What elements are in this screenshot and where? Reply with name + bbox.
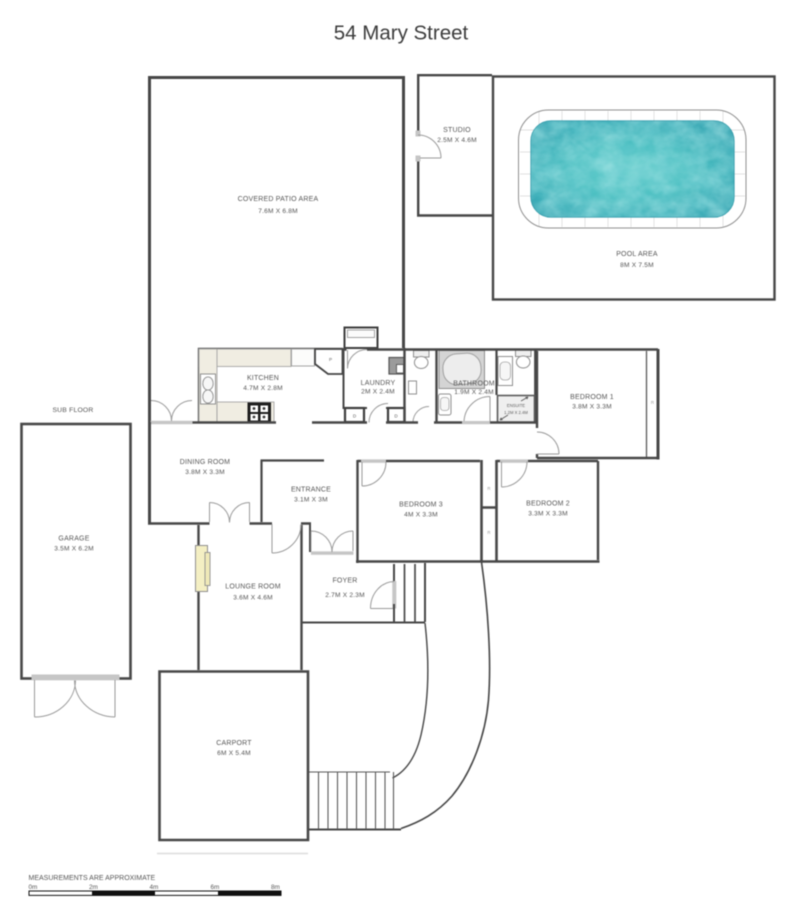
svg-text:0m: 0m xyxy=(29,884,38,891)
svg-text:ENSUITE: ENSUITE xyxy=(507,403,525,408)
svg-text:COVERED PATIO AREA: COVERED PATIO AREA xyxy=(238,196,319,203)
svg-text:R: R xyxy=(487,486,490,491)
svg-text:GARAGE: GARAGE xyxy=(58,536,89,543)
svg-text:2M X 2.4M: 2M X 2.4M xyxy=(361,389,395,396)
svg-text:54 Mary Street: 54 Mary Street xyxy=(334,22,469,45)
svg-text:P: P xyxy=(329,357,332,362)
svg-text:BEDROOM 3: BEDROOM 3 xyxy=(399,502,443,509)
svg-text:7.6M X 6.8M: 7.6M X 6.8M xyxy=(258,208,298,215)
svg-text:2.5M X 4.6M: 2.5M X 4.6M xyxy=(437,137,477,144)
svg-text:3.5M X 6.2M: 3.5M X 6.2M xyxy=(54,546,94,553)
svg-text:8m: 8m xyxy=(271,884,280,891)
svg-text:3.6M X 4.6M: 3.6M X 4.6M xyxy=(233,595,273,602)
svg-text:CARPORT: CARPORT xyxy=(216,740,252,747)
svg-text:4m: 4m xyxy=(150,884,159,891)
svg-text:R: R xyxy=(487,530,490,535)
svg-text:LAUNDRY: LAUNDRY xyxy=(361,380,396,387)
svg-text:ENTRANCE: ENTRANCE xyxy=(291,487,331,494)
svg-text:BEDROOM 2: BEDROOM 2 xyxy=(526,501,570,508)
svg-text:1.9M X 2.4M: 1.9M X 2.4M xyxy=(454,389,494,396)
svg-text:STUDIO: STUDIO xyxy=(443,127,471,134)
svg-text:3.8M X 3.3M: 3.8M X 3.3M xyxy=(185,469,225,476)
svg-text:BEDROOM 1: BEDROOM 1 xyxy=(570,394,614,401)
svg-text:SUB FLOOR: SUB FLOOR xyxy=(52,407,93,414)
svg-text:1.2M X 2.4M: 1.2M X 2.4M xyxy=(504,410,528,415)
svg-text:3.1M X 3M: 3.1M X 3M xyxy=(294,497,328,504)
svg-text:POOL AREA: POOL AREA xyxy=(616,251,658,258)
svg-text:6M X 5.4M: 6M X 5.4M xyxy=(217,750,251,757)
svg-text:MEASUREMENTS ARE APPROXIMATE: MEASUREMENTS ARE APPROXIMATE xyxy=(29,875,156,882)
svg-text:8M X 7.5M: 8M X 7.5M xyxy=(620,262,654,269)
svg-text:4.7M X 2.8M: 4.7M X 2.8M xyxy=(243,385,283,392)
svg-text:6m: 6m xyxy=(211,884,220,891)
svg-text:3.8M X 3.3M: 3.8M X 3.3M xyxy=(572,404,612,411)
svg-text:2m: 2m xyxy=(89,884,98,891)
svg-text:R: R xyxy=(651,400,654,405)
svg-text:LOUNGE ROOM: LOUNGE ROOM xyxy=(225,584,280,591)
svg-text:DINING ROOM: DINING ROOM xyxy=(180,459,230,466)
svg-text:FOYER: FOYER xyxy=(332,578,357,585)
svg-text:KITCHEN: KITCHEN xyxy=(247,375,279,382)
svg-text:4M X 3.3M: 4M X 3.3M xyxy=(404,512,438,519)
svg-text:BATHROOM: BATHROOM xyxy=(453,381,495,388)
svg-text:2.7M X 2.3M: 2.7M X 2.3M xyxy=(325,592,365,599)
svg-text:3.3M X 3.3M: 3.3M X 3.3M xyxy=(528,511,568,518)
